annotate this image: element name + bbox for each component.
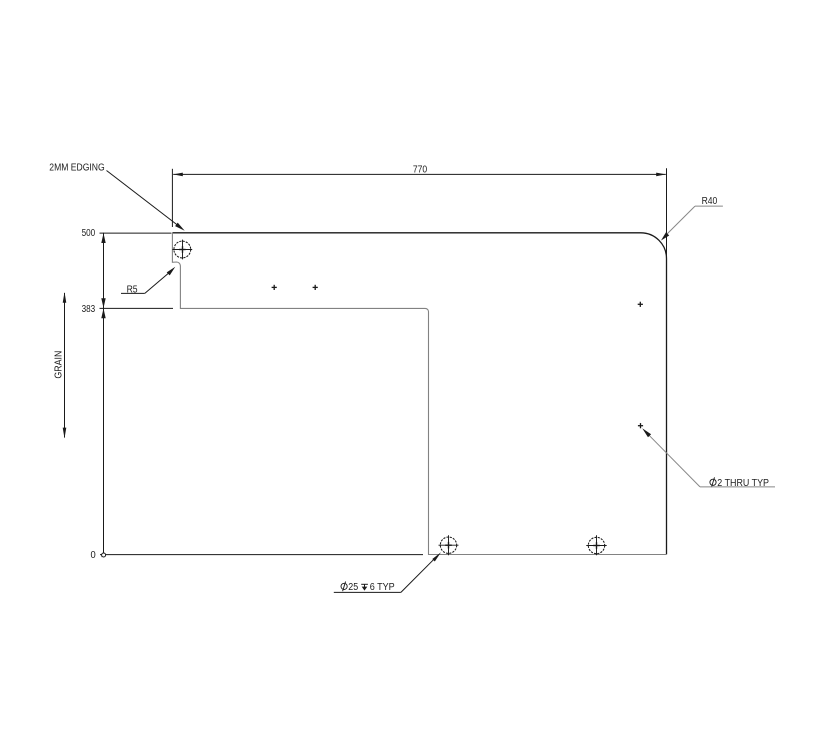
- svg-text:6 TYP: 6 TYP: [370, 582, 395, 593]
- svg-text:500: 500: [82, 228, 96, 239]
- svg-text:770: 770: [413, 165, 428, 176]
- svg-text:2MM EDGING: 2MM EDGING: [49, 162, 104, 173]
- svg-text:R40: R40: [702, 196, 718, 207]
- svg-text:383: 383: [82, 304, 96, 315]
- svg-text:GRAIN: GRAIN: [53, 351, 64, 379]
- svg-text:0: 0: [91, 550, 97, 561]
- svg-text:25: 25: [348, 582, 358, 593]
